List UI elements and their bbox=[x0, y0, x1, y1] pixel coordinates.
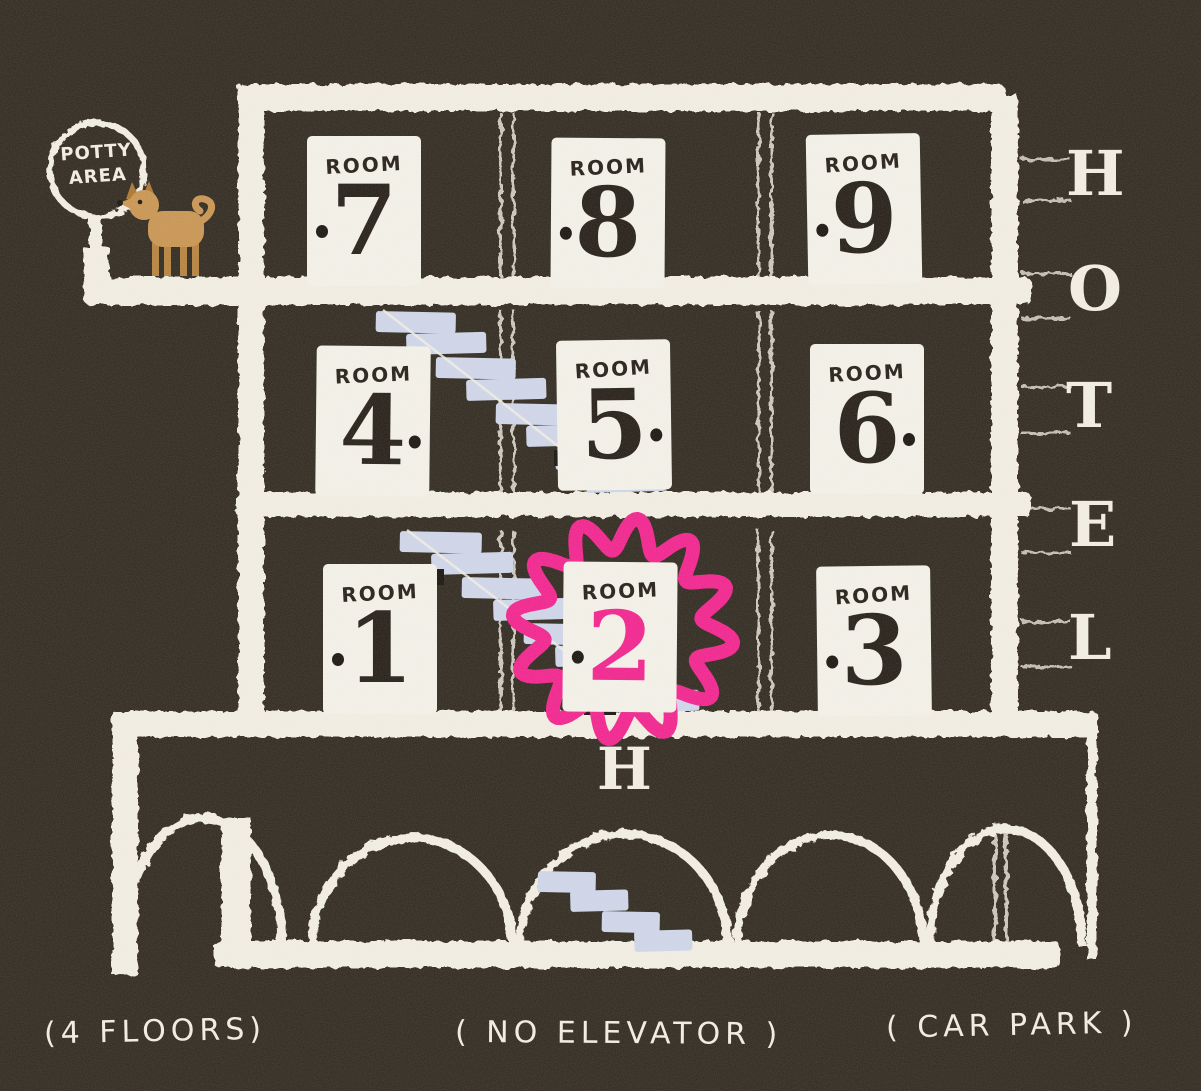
room-number: 7 bbox=[307, 177, 421, 265]
room-number: 4 bbox=[315, 386, 430, 476]
caption-four-floors: (4 FLOORS) bbox=[44, 1012, 267, 1052]
caption-car-park: ( CAR PARK ) bbox=[886, 1005, 1138, 1045]
room-door-8: ROOM 8 bbox=[550, 138, 665, 289]
room-label: ROOM bbox=[809, 358, 924, 388]
caption-no-elevator: ( NO ELEVATOR ) bbox=[455, 1015, 783, 1052]
door-knob bbox=[903, 433, 915, 446]
room-number: 1 bbox=[323, 605, 437, 693]
door-knob bbox=[572, 650, 584, 663]
room-door-4: ROOM 4 bbox=[315, 345, 431, 496]
door-knob bbox=[826, 655, 838, 668]
door-knob bbox=[409, 435, 421, 448]
hotel-sign-letter: T bbox=[1066, 375, 1112, 437]
hotel-sign-letter: L bbox=[1068, 607, 1112, 669]
hotel-sign-letter: H bbox=[1066, 143, 1125, 205]
room-label: ROOM bbox=[563, 577, 678, 606]
door-knob bbox=[560, 226, 572, 239]
room-label: ROOM bbox=[306, 150, 421, 180]
door-knob bbox=[650, 428, 662, 441]
room-door-5: ROOM 5 bbox=[556, 339, 672, 491]
entrance-letter: H bbox=[597, 740, 652, 798]
hotel-sign-letter: O bbox=[1068, 258, 1122, 320]
room-number: 8 bbox=[551, 179, 666, 268]
room-number: 6 bbox=[810, 385, 924, 473]
room-door-1: ROOM 1 bbox=[323, 564, 437, 714]
room-door-3: ROOM 3 bbox=[816, 565, 932, 716]
room-door-7: ROOM 7 bbox=[307, 136, 421, 286]
potty-area-sign: POTTY AREA bbox=[47, 138, 146, 193]
door-knob bbox=[816, 223, 828, 236]
room-label: ROOM bbox=[316, 361, 431, 390]
room-number: 2 bbox=[563, 603, 678, 692]
door-knob bbox=[332, 653, 344, 666]
room-door-6: ROOM 6 bbox=[810, 344, 924, 494]
hotel-sign-letter: E bbox=[1069, 494, 1116, 556]
room-number: 9 bbox=[806, 174, 922, 264]
room-label: ROOM bbox=[551, 152, 666, 181]
room-number: 3 bbox=[817, 606, 932, 696]
text-overlay: POTTY AREA ROOM 7 ROOM 8 ROOM 9 ROOM 4 R… bbox=[0, 0, 1201, 1091]
hotel-illustration: POTTY AREA ROOM 7 ROOM 8 ROOM 9 ROOM 4 R… bbox=[0, 0, 1201, 1091]
door-knob bbox=[316, 225, 328, 238]
room-number: 5 bbox=[557, 380, 672, 470]
room-label: ROOM bbox=[322, 578, 437, 608]
room-door-2-highlighted: ROOM 2 bbox=[562, 562, 677, 713]
room-door-9: ROOM 9 bbox=[806, 133, 923, 285]
